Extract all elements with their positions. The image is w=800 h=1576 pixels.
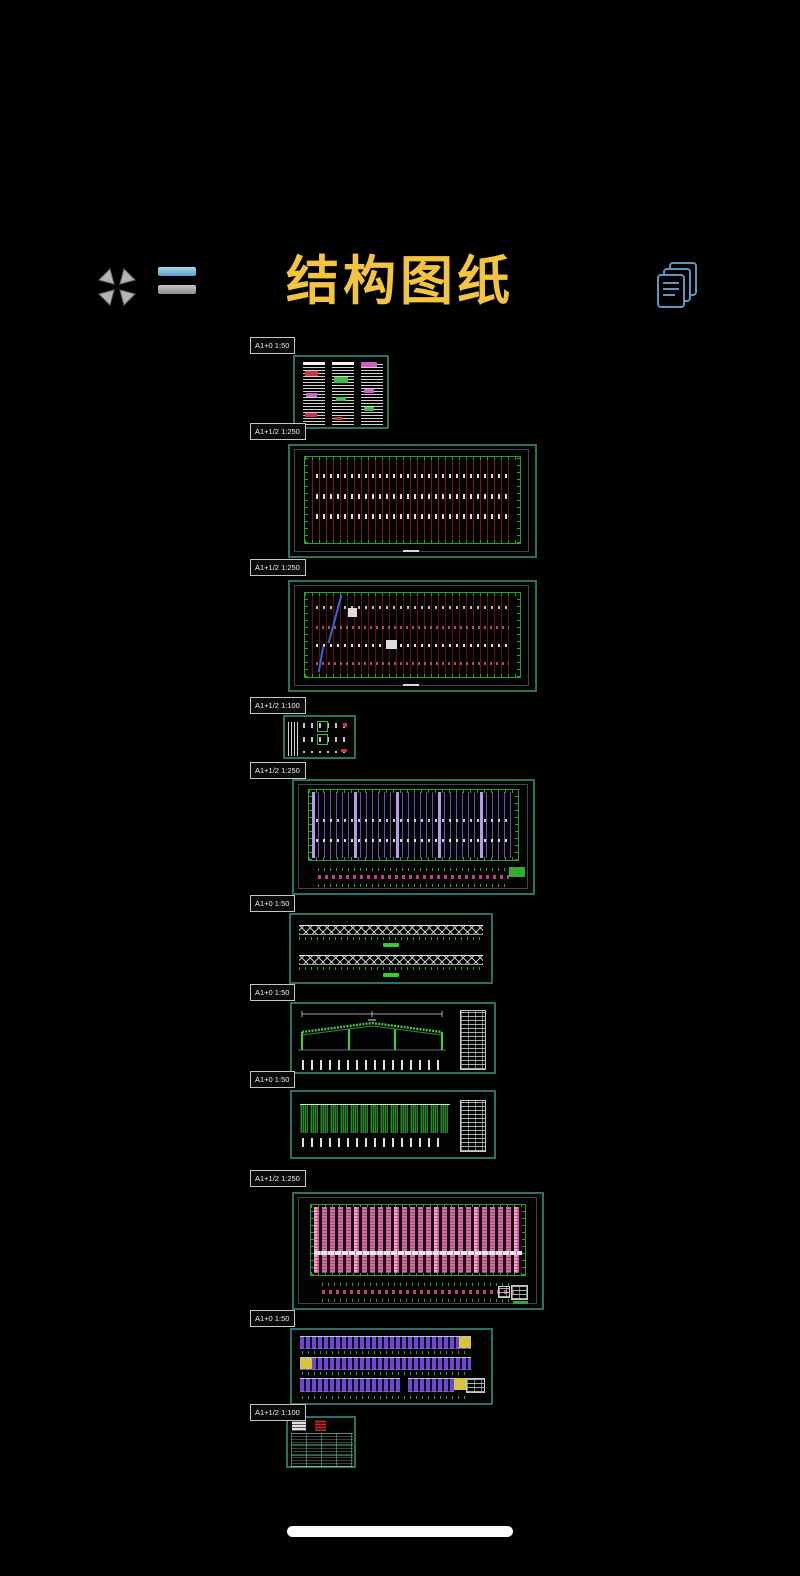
- member-row: [316, 819, 511, 822]
- page-title: 结构图纸: [240, 250, 560, 314]
- thumbnail-side-elevation[interactable]: [290, 1090, 496, 1159]
- notes-column: [332, 362, 354, 425]
- sheet-scale-tag: A1+0 1:50: [250, 984, 295, 1001]
- sheet-scale-tag: A1+1/2 1:250: [250, 559, 306, 576]
- thumbnail-foundation-plan[interactable]: [288, 444, 537, 558]
- dimension-strip: [302, 1372, 465, 1375]
- detail-mark: [315, 1420, 326, 1431]
- sheet-scale-tag: A1+0 1:50: [250, 1071, 295, 1088]
- thumbnail-beam-elevations[interactable]: [289, 913, 493, 984]
- dimension-strip: [318, 884, 509, 887]
- beam-strip: [322, 1290, 514, 1294]
- dimension-strip: [302, 1396, 465, 1399]
- dimension-strip: [322, 1283, 514, 1286]
- drawing-caption: [403, 684, 419, 686]
- thumbnail-girt-elevations[interactable]: [290, 1328, 493, 1405]
- sheet-scale-tag: A1+0 1:50: [250, 337, 295, 354]
- frame-elevation-drawing: [296, 1008, 452, 1056]
- beam-strip: [318, 875, 509, 879]
- menu-lines-icon[interactable]: [158, 262, 198, 302]
- girt-band: [300, 1336, 471, 1349]
- home-indicator[interactable]: [287, 1526, 513, 1537]
- details-grid: [291, 1433, 353, 1467]
- detail-mark: [341, 749, 347, 752]
- details-row: [302, 1138, 442, 1147]
- schedule-table: [460, 1010, 486, 1070]
- truss-strip: [299, 925, 483, 935]
- sheet-scale-tag: A1+1/2 1:250: [250, 1170, 306, 1187]
- detail-block: [348, 608, 357, 617]
- dimension-strip: [322, 1299, 514, 1302]
- purlin-field: [314, 1207, 522, 1273]
- truss-strip: [299, 955, 483, 965]
- member-row: [316, 839, 511, 842]
- pages-icon[interactable]: [653, 260, 703, 312]
- detail-block: [466, 1378, 485, 1393]
- notes-column: [361, 362, 383, 425]
- column-row: [316, 474, 509, 478]
- dimension-strip: [318, 868, 509, 871]
- drawing-caption: [403, 550, 419, 552]
- bolt-row: [316, 644, 509, 647]
- legend-block: [509, 867, 525, 877]
- sheet-scale-tag: A1+1/2 1:250: [250, 762, 306, 779]
- thumbnail-connection-details[interactable]: [286, 1416, 356, 1468]
- grid-lines: [312, 460, 513, 540]
- bracing-field: [312, 792, 515, 858]
- thumbnail-purlin-plan[interactable]: [292, 1192, 544, 1310]
- ridge-band: [314, 1251, 522, 1255]
- detail-block: [292, 1421, 306, 1431]
- sheet-scale-tag: A1+1/2 1:100: [250, 697, 306, 714]
- dimension-strip: [299, 967, 483, 970]
- screen: 结构图纸 A1+0 1:50 A1+1/2 1:250 A1+1/2 1:250: [0, 0, 800, 1576]
- detail-block: [288, 722, 300, 756]
- thumbnail-roof-bracing-plan[interactable]: [292, 779, 535, 895]
- detail-block: [317, 734, 328, 745]
- legend-block: [511, 1285, 528, 1300]
- menu-line-gray: [158, 285, 196, 294]
- legend-bar: [513, 1301, 528, 1304]
- sheet-scale-tag: A1+0 1:50: [250, 895, 295, 912]
- thumbnail-frame-elevation[interactable]: [290, 1002, 496, 1074]
- detail-mark: [343, 723, 347, 727]
- detail-block: [317, 721, 328, 732]
- sheet-scale-tag: A1+0 1:50: [250, 1310, 295, 1327]
- dimension-strip: [299, 937, 483, 940]
- drawing-caption: [383, 973, 399, 977]
- bolt-row: [316, 662, 509, 665]
- menu-line-blue: [158, 267, 196, 276]
- girt-band: [300, 1357, 471, 1370]
- elevation-band: [300, 1104, 450, 1133]
- details-row: [302, 1060, 442, 1070]
- dimension-strip: [302, 1351, 465, 1354]
- bolt-row: [316, 606, 509, 609]
- detail-block: [386, 640, 397, 649]
- schedule-table: [460, 1100, 486, 1152]
- collapse-icon[interactable]: [93, 263, 141, 311]
- column-row: [316, 494, 509, 499]
- thumbnail-foundation-details[interactable]: [283, 715, 356, 759]
- notes-column: [303, 362, 325, 425]
- thumbnail-anchor-bolt-plan[interactable]: [288, 580, 537, 692]
- girt-band: [408, 1378, 454, 1392]
- column-row: [316, 514, 509, 519]
- drawing-caption: [383, 943, 399, 947]
- girt-band: [300, 1378, 400, 1392]
- legend-block: [498, 1286, 510, 1298]
- thumbnail-general-notes[interactable]: [293, 355, 389, 429]
- sheet-scale-tag: A1+1/2 1:100: [250, 1404, 306, 1421]
- bolt-row: [316, 626, 509, 629]
- highlight-patch: [454, 1378, 466, 1390]
- sheet-scale-tag: A1+1/2 1:250: [250, 423, 306, 440]
